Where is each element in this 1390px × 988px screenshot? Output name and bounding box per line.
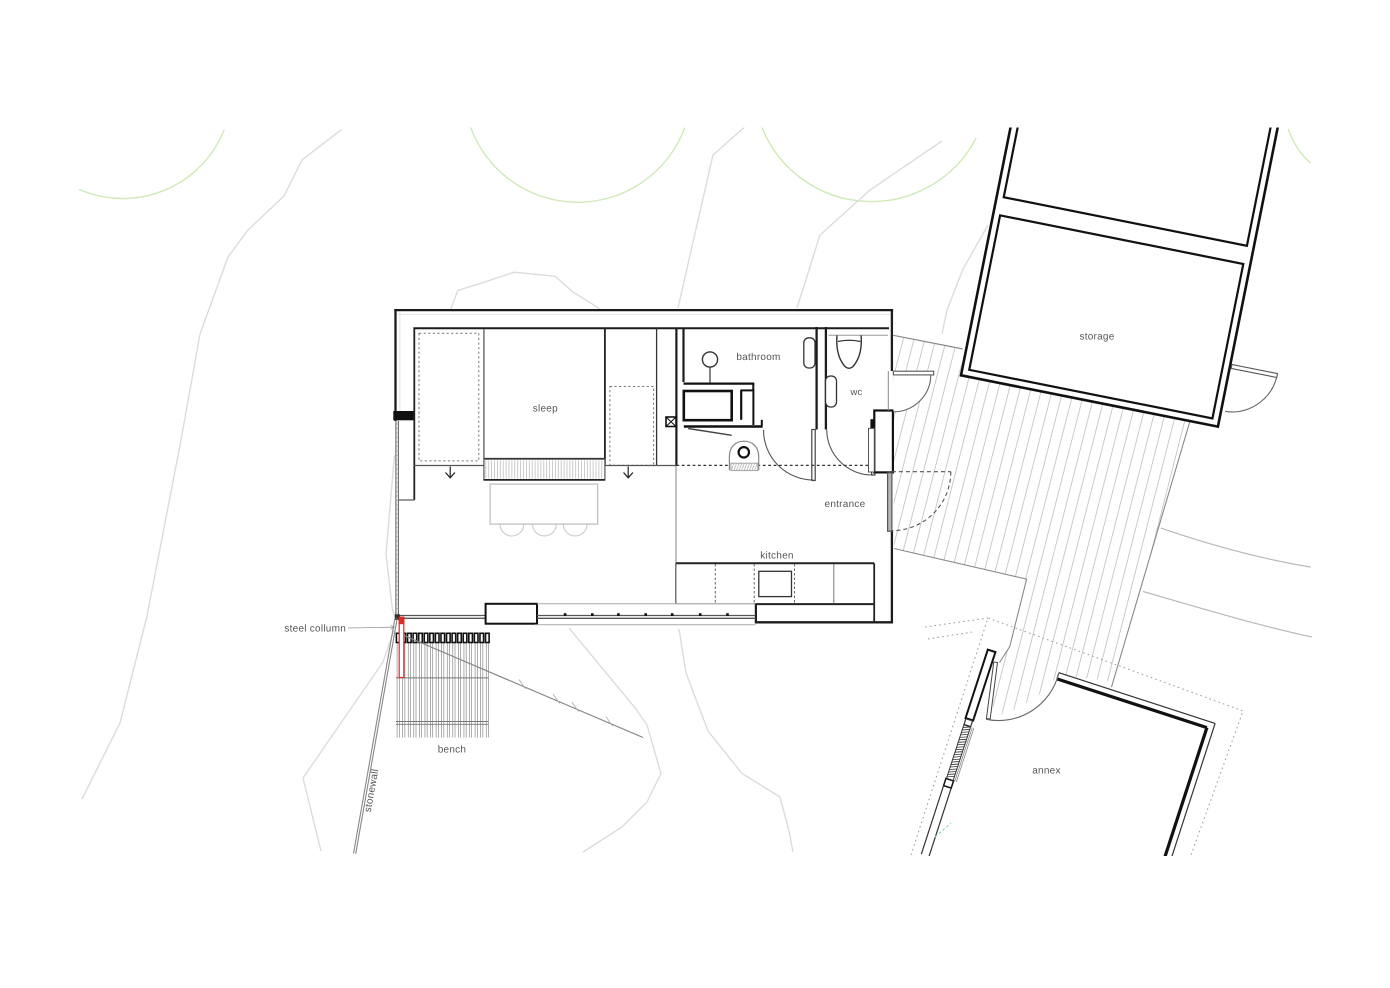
svg-text:storage: storage: [1079, 332, 1114, 343]
svg-text:kitchen: kitchen: [760, 551, 793, 562]
svg-text:sleep: sleep: [533, 404, 558, 415]
svg-text:entrance: entrance: [825, 499, 866, 510]
svg-text:steel collumn: steel collumn: [284, 624, 346, 635]
svg-text:annex: annex: [1032, 766, 1061, 777]
svg-text:bathroom: bathroom: [736, 352, 780, 363]
svg-text:bench: bench: [438, 745, 467, 756]
svg-text:wc: wc: [849, 387, 862, 398]
